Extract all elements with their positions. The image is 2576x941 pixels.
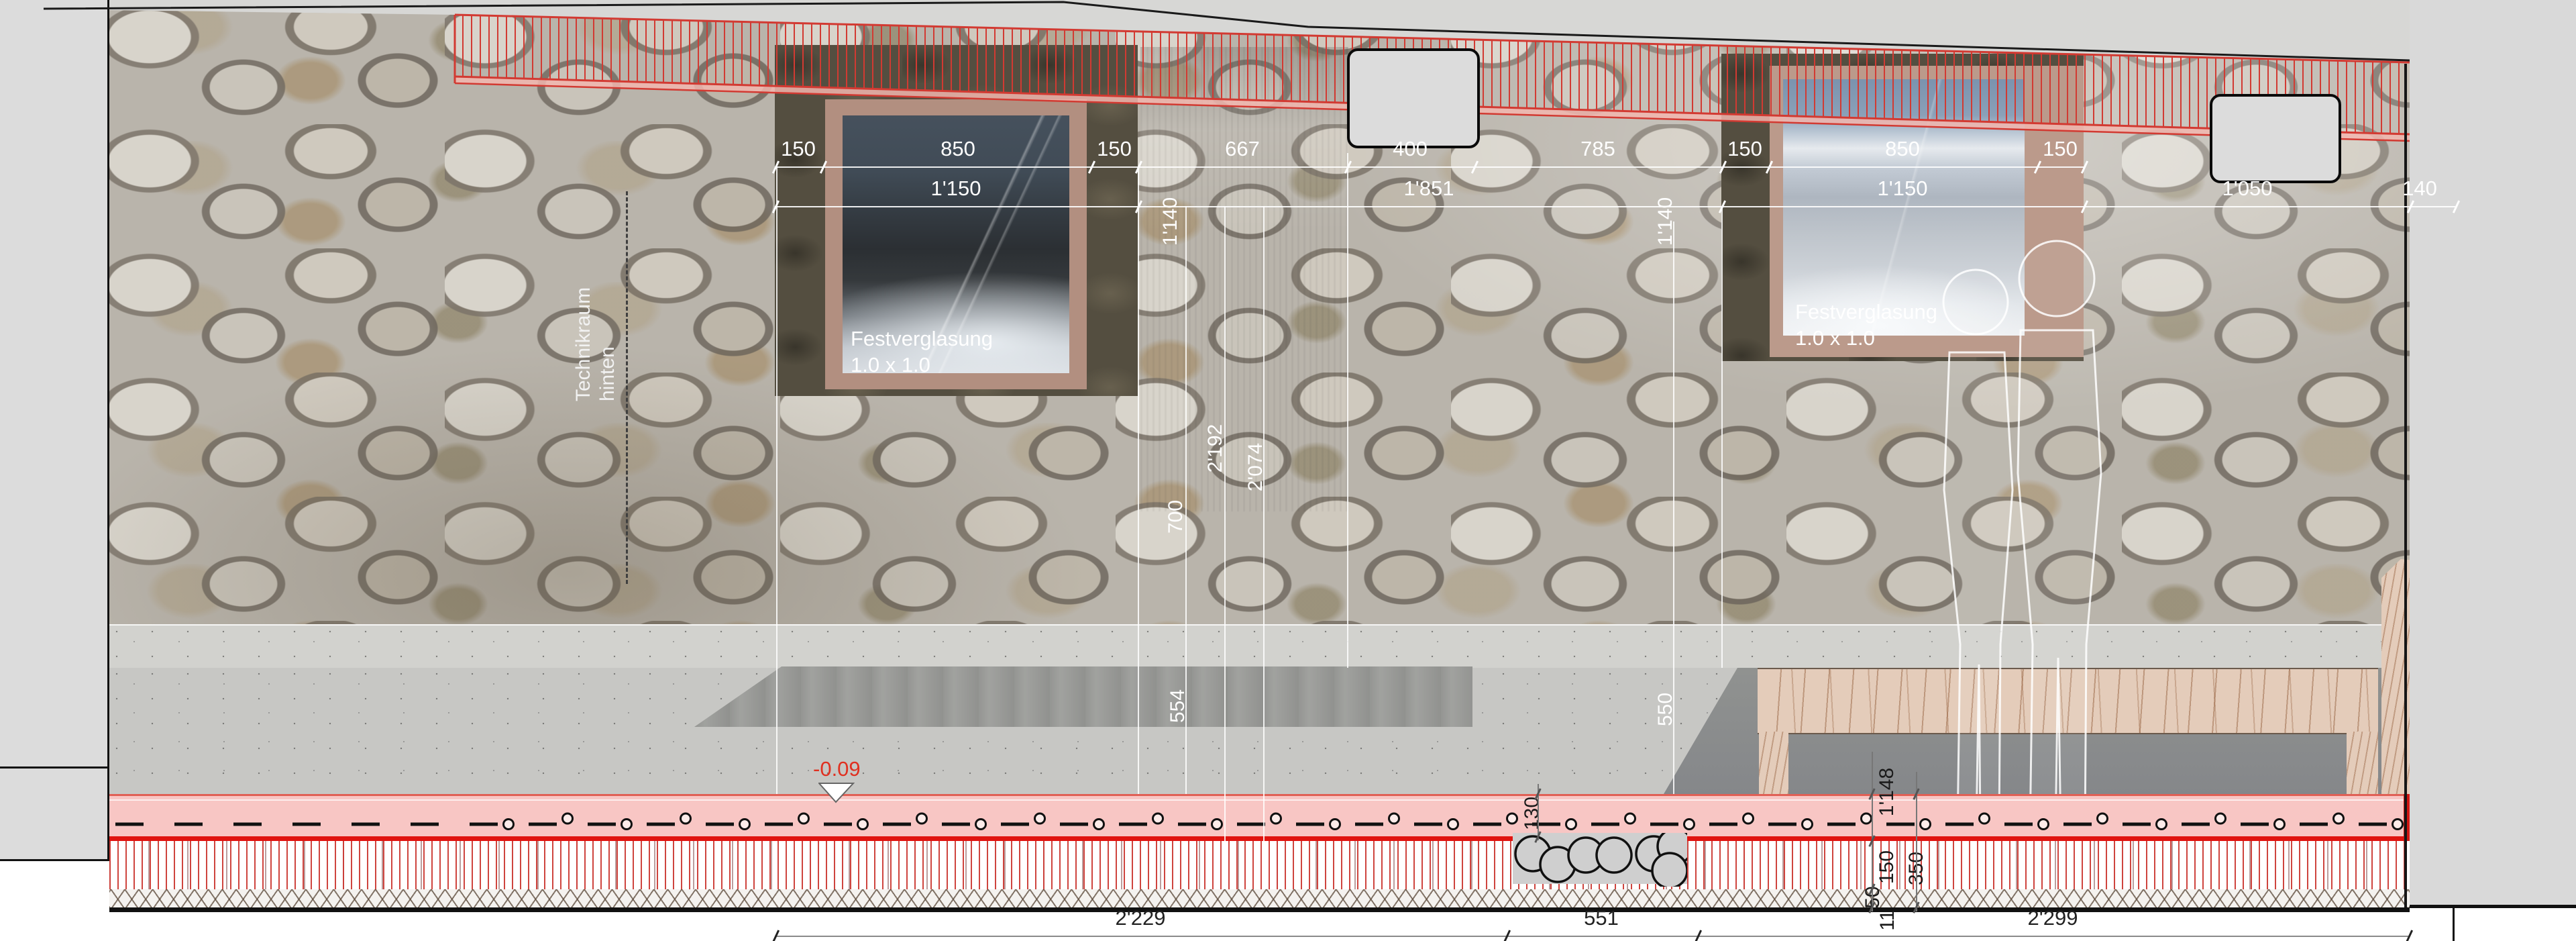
- dim-label: 551: [1584, 906, 1619, 930]
- dim-label-rotated: 1'148: [1876, 768, 1898, 816]
- dim-label-rotated: 2'192: [1204, 424, 1227, 473]
- dim-line: [775, 936, 2408, 937]
- guide-line: [1138, 166, 1139, 794]
- dim-label-rotated: 1'140: [1159, 197, 1182, 246]
- elevation-drawing: Festverglasung 1.0 x 1.0 Festverglasung …: [0, 0, 2576, 941]
- dim-label: 1'150: [1878, 177, 1928, 201]
- dim-label: 850: [941, 137, 975, 161]
- dim-label: 150: [2043, 137, 2078, 161]
- dim-line: [775, 166, 2084, 168]
- dim-label: 400: [1393, 137, 1428, 161]
- dim-label: 140: [2402, 177, 2437, 201]
- guide-line: [1673, 221, 1674, 794]
- guide-line: [1347, 153, 1348, 668]
- dim-label: 785: [1580, 137, 1615, 161]
- dim-label: 667: [1225, 137, 1260, 161]
- guide-line: [776, 166, 777, 794]
- guide-line: [1224, 206, 1226, 841]
- guide-line: [1721, 206, 1723, 668]
- dim-label: 2'299: [2028, 906, 2078, 930]
- dim-label: 150: [1727, 137, 1762, 161]
- dim-line: [775, 206, 2455, 207]
- dim-label: 150: [1097, 137, 1132, 161]
- dim-label: 2'229: [1116, 906, 1166, 930]
- dim-label-rotated: 11: [1876, 909, 1899, 930]
- dim-label: 850: [1885, 137, 1920, 161]
- dim-label: 1'050: [2222, 177, 2273, 201]
- guide-line: [1185, 206, 1187, 794]
- dim-label-rotated: 700: [1165, 500, 1187, 534]
- dim-label-rotated: 150: [1876, 850, 1898, 884]
- dim-label: 1'851: [1404, 177, 1454, 201]
- dim-label-rotated: 130: [1521, 797, 1544, 830]
- dim-tick-gray: [1534, 831, 1541, 842]
- guide-line: [1263, 206, 1265, 841]
- dim-label: 1'150: [931, 177, 981, 201]
- dim-label: 150: [781, 137, 816, 161]
- dimension-layer: 1508501506674007851508501501'1501'8511'1…: [0, 0, 2576, 941]
- dim-tick-gray: [1913, 901, 1919, 913]
